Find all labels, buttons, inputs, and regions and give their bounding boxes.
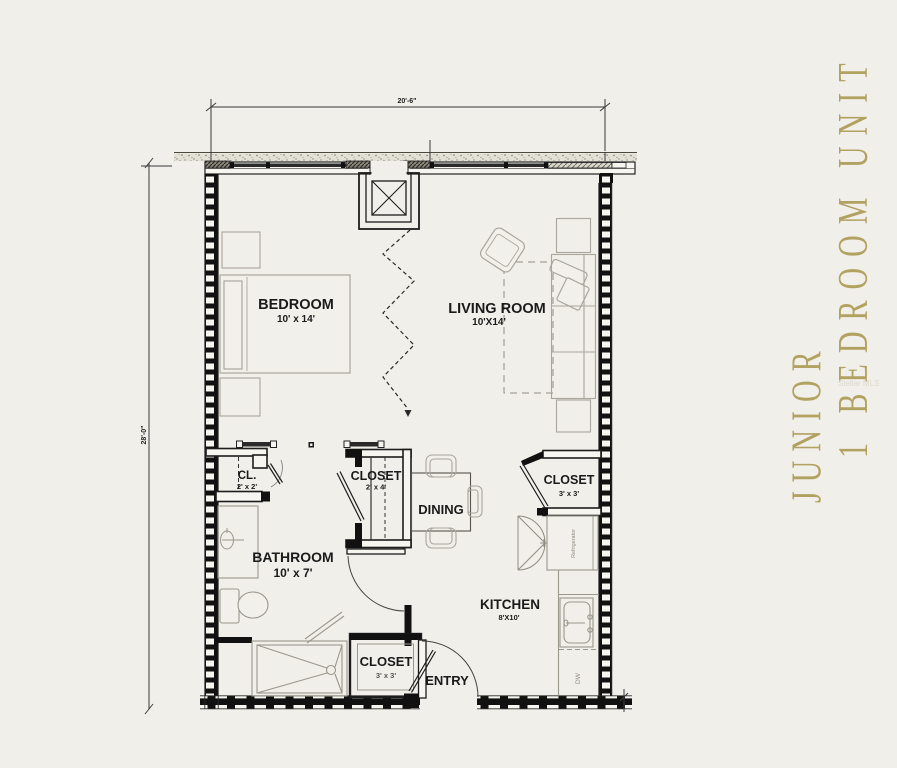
svg-text:LIVING ROOM: LIVING ROOM <box>448 301 545 317</box>
svg-text:3' x 3': 3' x 3' <box>376 671 396 680</box>
svg-text:CLOSET: CLOSET <box>360 654 413 669</box>
svg-text:Stellar MLS: Stellar MLS <box>838 379 879 388</box>
svg-text:DW: DW <box>575 672 582 684</box>
svg-text:3' x 3': 3' x 3' <box>559 489 579 498</box>
svg-text:2' x 4': 2' x 4' <box>366 483 386 492</box>
svg-text:CLOSET: CLOSET <box>351 469 402 483</box>
svg-text:ENTRY: ENTRY <box>425 673 469 688</box>
svg-text:20'-6": 20'-6" <box>398 98 417 105</box>
svg-text:JUNIOR: JUNIOR <box>783 342 830 503</box>
svg-text:BATHROOM: BATHROOM <box>252 549 333 565</box>
svg-text:Refrigerator: Refrigerator <box>571 529 577 558</box>
svg-text:8'X10': 8'X10' <box>498 613 519 622</box>
svg-text:1 BEDROOM UNIT: 1 BEDROOM UNIT <box>829 52 876 458</box>
svg-text:2' x 2': 2' x 2' <box>237 482 257 491</box>
svg-text:CL.: CL. <box>238 470 257 482</box>
svg-text:KITCHEN: KITCHEN <box>480 597 540 612</box>
svg-text:DINING: DINING <box>418 502 464 517</box>
svg-text:BEDROOM: BEDROOM <box>258 297 334 313</box>
svg-text:10'X14': 10'X14' <box>472 317 506 328</box>
svg-text:10' x 7': 10' x 7' <box>273 566 312 580</box>
svg-text:28'-0": 28'-0" <box>141 426 148 445</box>
svg-text:CLOSET: CLOSET <box>544 473 595 487</box>
svg-text:10' x 14': 10' x 14' <box>277 314 315 325</box>
